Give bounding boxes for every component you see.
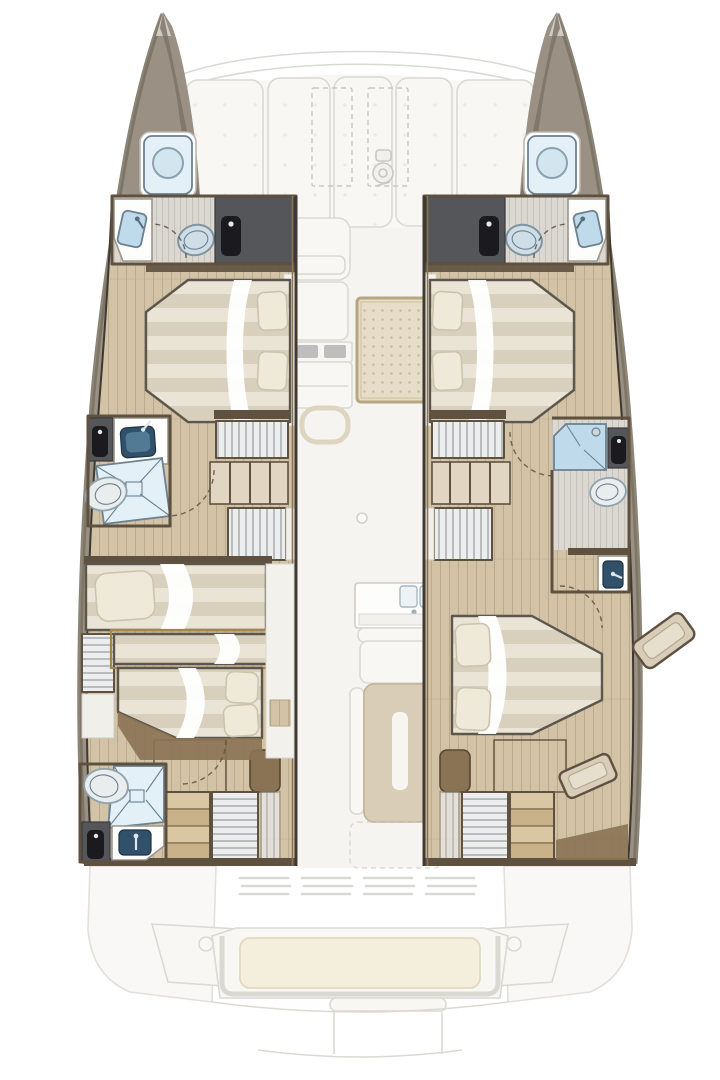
bench-knob bbox=[199, 937, 213, 951]
catamaran-floor-plan-page bbox=[0, 0, 720, 1080]
pillow bbox=[94, 570, 155, 622]
helm-seat-cushion bbox=[292, 282, 348, 340]
pillow bbox=[223, 704, 259, 737]
pillow bbox=[455, 687, 491, 731]
catamaran-floor-plan bbox=[0, 0, 720, 1080]
pillow bbox=[455, 623, 491, 667]
shelf-trim bbox=[568, 548, 629, 555]
bench-knob bbox=[507, 937, 521, 951]
side-panel bbox=[266, 564, 294, 758]
bench-cushion bbox=[240, 938, 480, 988]
windlass-icon bbox=[373, 150, 393, 186]
helm-station-ghost bbox=[288, 218, 352, 442]
aft-single-berth bbox=[86, 564, 266, 630]
mid-berth bbox=[111, 630, 287, 668]
deck-drain bbox=[357, 513, 367, 523]
pillow bbox=[225, 671, 259, 704]
galley-sink bbox=[400, 586, 417, 607]
vanity-sink bbox=[119, 830, 151, 855]
hanging-locker bbox=[82, 634, 114, 692]
side-lounge bbox=[350, 688, 364, 814]
vanity-sink bbox=[603, 561, 623, 588]
